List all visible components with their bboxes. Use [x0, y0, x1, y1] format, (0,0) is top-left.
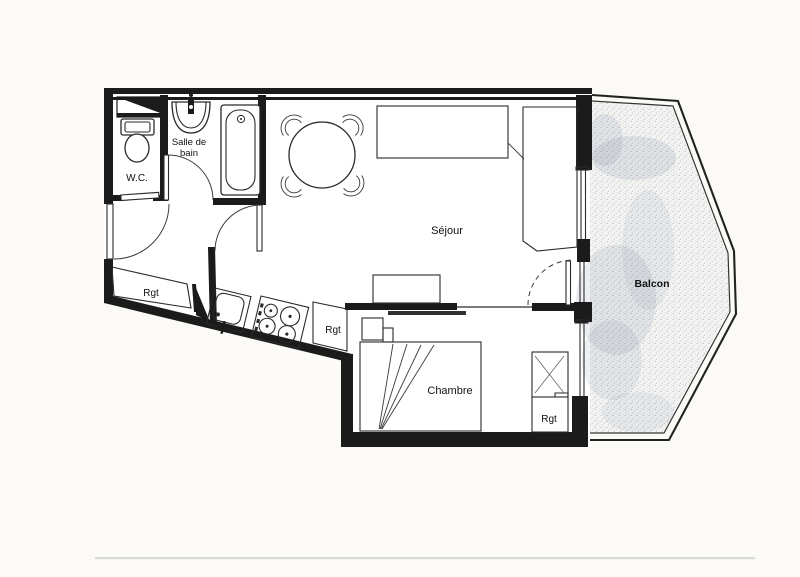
shelf-icon: [388, 311, 466, 315]
room-label-balcon: Balcon: [634, 278, 669, 290]
wall-partition-chambre: [345, 303, 457, 310]
wall-left-upper: [104, 88, 113, 204]
bathtub-icon: [221, 105, 260, 195]
room-label-bath-line1: Salle de: [172, 137, 206, 148]
wall-right-mid-post: [577, 239, 590, 262]
floor-plan-canvas: W.C. Salle de bain: [0, 0, 800, 577]
wall-top-inner: [104, 97, 592, 100]
balcony: [576, 95, 736, 440]
wall-bath-bottom: [213, 198, 266, 205]
wall-top-outer: [104, 88, 592, 94]
room-label-chambre: Chambre: [427, 385, 472, 397]
room-label-rgt-chambre: Rgt: [541, 414, 557, 425]
wall-bottom: [341, 432, 586, 447]
chambre-door-leaf: [566, 261, 571, 305]
room-label-wc: W.C.: [126, 173, 148, 184]
wall-right-pillar: [574, 302, 592, 322]
wall-wc-bottom-left-stub: [108, 195, 122, 201]
wall-right-bottom: [572, 396, 588, 447]
entrance-door-leaf: [107, 204, 113, 259]
scan-artifact-line: [95, 557, 755, 559]
room-label-rgt-hall: Rgt: [143, 288, 159, 299]
scanned-floor-plan-page: W.C. Salle de bain: [0, 0, 800, 577]
sejour-door-leaf: [257, 205, 262, 251]
room-label-sejour: Séjour: [431, 225, 463, 237]
room-label-rgt-kitchen: Rgt: [325, 325, 341, 336]
wall-right-top-corner: [576, 95, 592, 170]
bathroom-door-leaf: [164, 155, 169, 200]
